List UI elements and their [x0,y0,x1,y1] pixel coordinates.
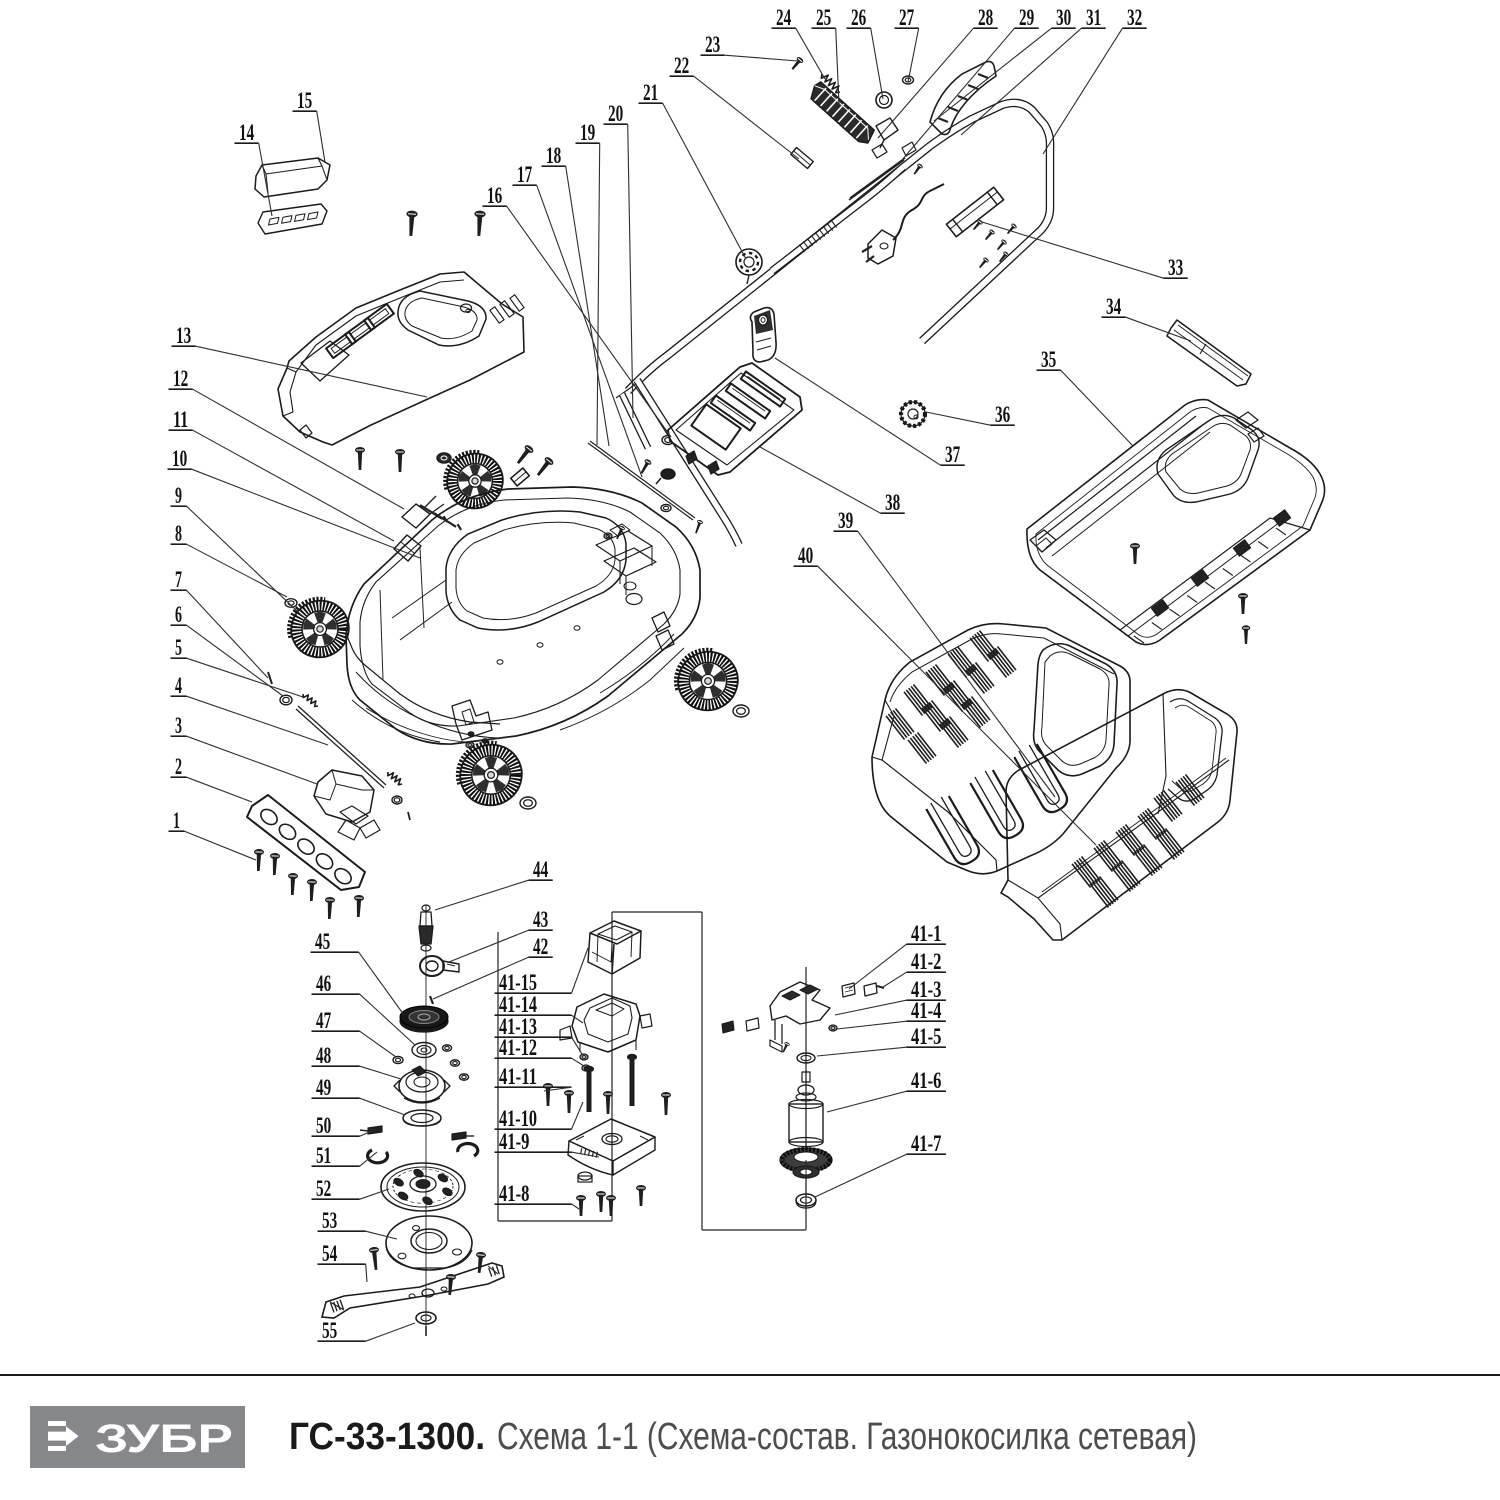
svg-text:18: 18 [546,143,561,168]
svg-text:2: 2 [175,754,182,779]
svg-text:33: 33 [1168,255,1183,280]
svg-text:45: 45 [315,929,330,954]
svg-text:28: 28 [978,5,993,30]
svg-text:20: 20 [608,101,623,126]
svg-text:40: 40 [798,543,813,568]
svg-text:19: 19 [580,120,595,145]
svg-text:21: 21 [643,80,658,105]
svg-text:48: 48 [316,1043,331,1068]
svg-text:41-9: 41-9 [499,1129,529,1154]
svg-text:41-1: 41-1 [911,921,941,946]
svg-text:54: 54 [322,1241,338,1266]
svg-text:30: 30 [1056,5,1071,30]
svg-text:16: 16 [487,183,502,208]
svg-text:36: 36 [995,402,1010,427]
svg-text:52: 52 [316,1176,331,1201]
svg-text:9: 9 [175,483,182,508]
svg-text:23: 23 [705,32,720,57]
svg-text:53: 53 [322,1208,337,1233]
svg-text:29: 29 [1019,5,1034,30]
svg-text:43: 43 [533,907,548,932]
svg-text:41-4: 41-4 [911,998,942,1023]
svg-text:Схема 1-1 (Схема-состав. Газон: Схема 1-1 (Схема-состав. Газонокосилка с… [497,1416,1197,1458]
svg-text:17: 17 [517,162,532,187]
svg-text:32: 32 [1127,5,1142,30]
svg-text:22: 22 [674,53,689,78]
svg-text:39: 39 [838,508,853,533]
svg-text:35: 35 [1041,347,1056,372]
svg-text:51: 51 [316,1143,331,1168]
svg-text:49: 49 [316,1075,331,1100]
svg-text:24: 24 [776,5,792,30]
svg-text:ЗУБР: ЗУБР [95,1417,233,1461]
svg-text:41-10: 41-10 [499,1106,537,1131]
svg-text:25: 25 [816,5,831,30]
svg-text:47: 47 [316,1008,331,1033]
svg-text:41-6: 41-6 [911,1068,941,1093]
svg-text:11: 11 [173,407,188,432]
svg-text:37: 37 [945,442,960,467]
svg-text:3: 3 [175,713,182,738]
svg-text:1: 1 [173,808,180,833]
svg-text:13: 13 [176,323,191,348]
svg-text:44: 44 [533,857,549,882]
svg-text:46: 46 [316,971,331,996]
svg-text:55: 55 [322,1318,337,1343]
svg-text:50: 50 [316,1113,331,1138]
svg-text:41-8: 41-8 [499,1181,529,1206]
svg-text:15: 15 [297,88,312,113]
svg-text:14: 14 [239,120,255,145]
svg-text:8: 8 [175,521,182,546]
svg-text:6: 6 [175,602,182,627]
svg-text:31: 31 [1086,5,1101,30]
svg-text:41-12: 41-12 [499,1035,537,1060]
svg-text:10: 10 [172,446,187,471]
svg-text:41-7: 41-7 [911,1131,941,1156]
svg-text:7: 7 [175,567,182,592]
svg-text:27: 27 [899,5,914,30]
svg-text:4: 4 [175,673,182,698]
svg-text:ГС-33-1300.: ГС-33-1300. [289,1416,485,1458]
svg-text:41-5: 41-5 [911,1024,941,1049]
svg-text:34: 34 [1106,294,1122,319]
svg-text:26: 26 [851,5,866,30]
svg-text:41-2: 41-2 [911,949,941,974]
svg-text:42: 42 [533,934,548,959]
svg-text:12: 12 [173,366,188,391]
svg-text:41-11: 41-11 [499,1064,537,1089]
svg-text:5: 5 [175,635,182,660]
svg-text:38: 38 [885,490,900,515]
